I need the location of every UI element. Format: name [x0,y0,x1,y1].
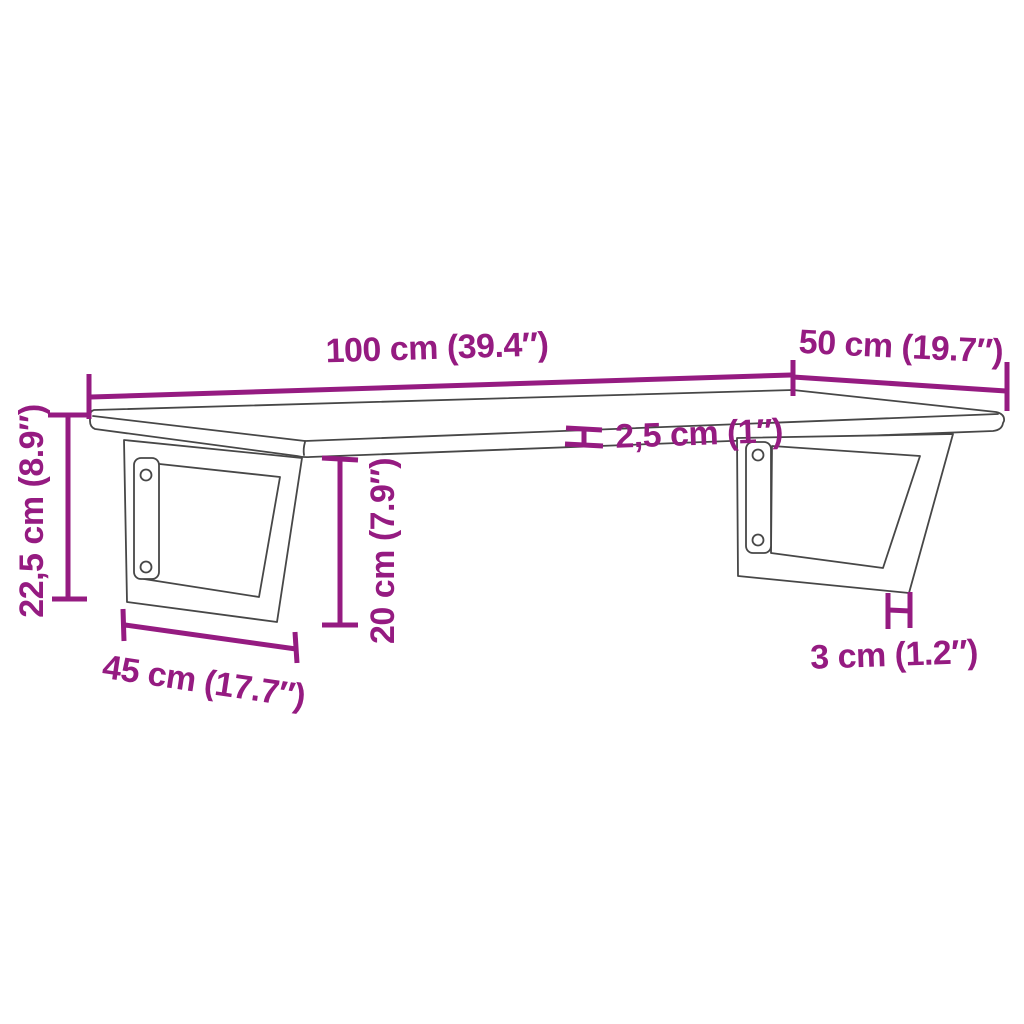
dimension-shelf-thickness-tick-bottom [565,444,603,446]
left-bracket [124,440,302,622]
dimension-bracket-bar-width-label: 3 cm (1.2″) [810,633,979,677]
left-bracket-screw-hole-top [141,470,152,481]
dimension-bracket-height-label: 20 cm (7.9″) [364,458,402,644]
dimension-shelf-width-label: 100 cm (39.4″) [325,325,549,370]
dimension-bracket-bar-width-crossbar [888,610,910,611]
left-bracket-inner-opening [141,462,280,597]
dimension-bracket-height-tick-top [322,458,358,460]
diagram-canvas: 100 cm (39.4″) 50 cm (19.7″) 2,5 cm (1″) [0,0,1024,1024]
right-bracket-screw-hole-top [753,450,764,461]
dimension-bracket-base-width-tick-right [295,632,297,663]
left-bracket-screw-hole-bottom [141,562,152,573]
dimension-bracket-base-width-tick-left [123,609,124,641]
dimension-overall-height-label: 22,5 cm (8.9″) [13,404,51,617]
right-bracket-screw-hole-bottom [753,535,764,546]
shelf-dimension-diagram: 100 cm (39.4″) 50 cm (19.7″) 2,5 cm (1″) [0,0,1024,1024]
dimension-shelf-thickness-label: 2,5 cm (1″) [615,412,784,456]
